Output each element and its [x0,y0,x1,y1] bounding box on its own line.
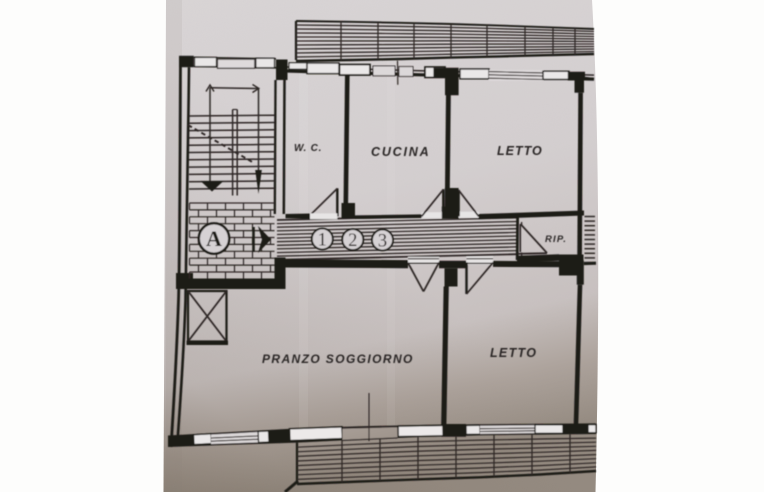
svg-text:2: 2 [348,231,357,251]
svg-text:LETTO: LETTO [497,144,543,158]
svg-text:1: 1 [318,231,327,251]
svg-text:A: A [206,226,222,251]
svg-text:LETTO: LETTO [490,346,537,360]
svg-text:CUCINA: CUCINA [371,145,430,159]
svg-text:RIP.: RIP. [545,234,567,245]
svg-text:3: 3 [378,232,387,252]
svg-text:W. C.: W. C. [294,143,322,154]
svg-text:PRANZO SOGGIORNO: PRANZO SOGGIORNO [262,352,414,366]
